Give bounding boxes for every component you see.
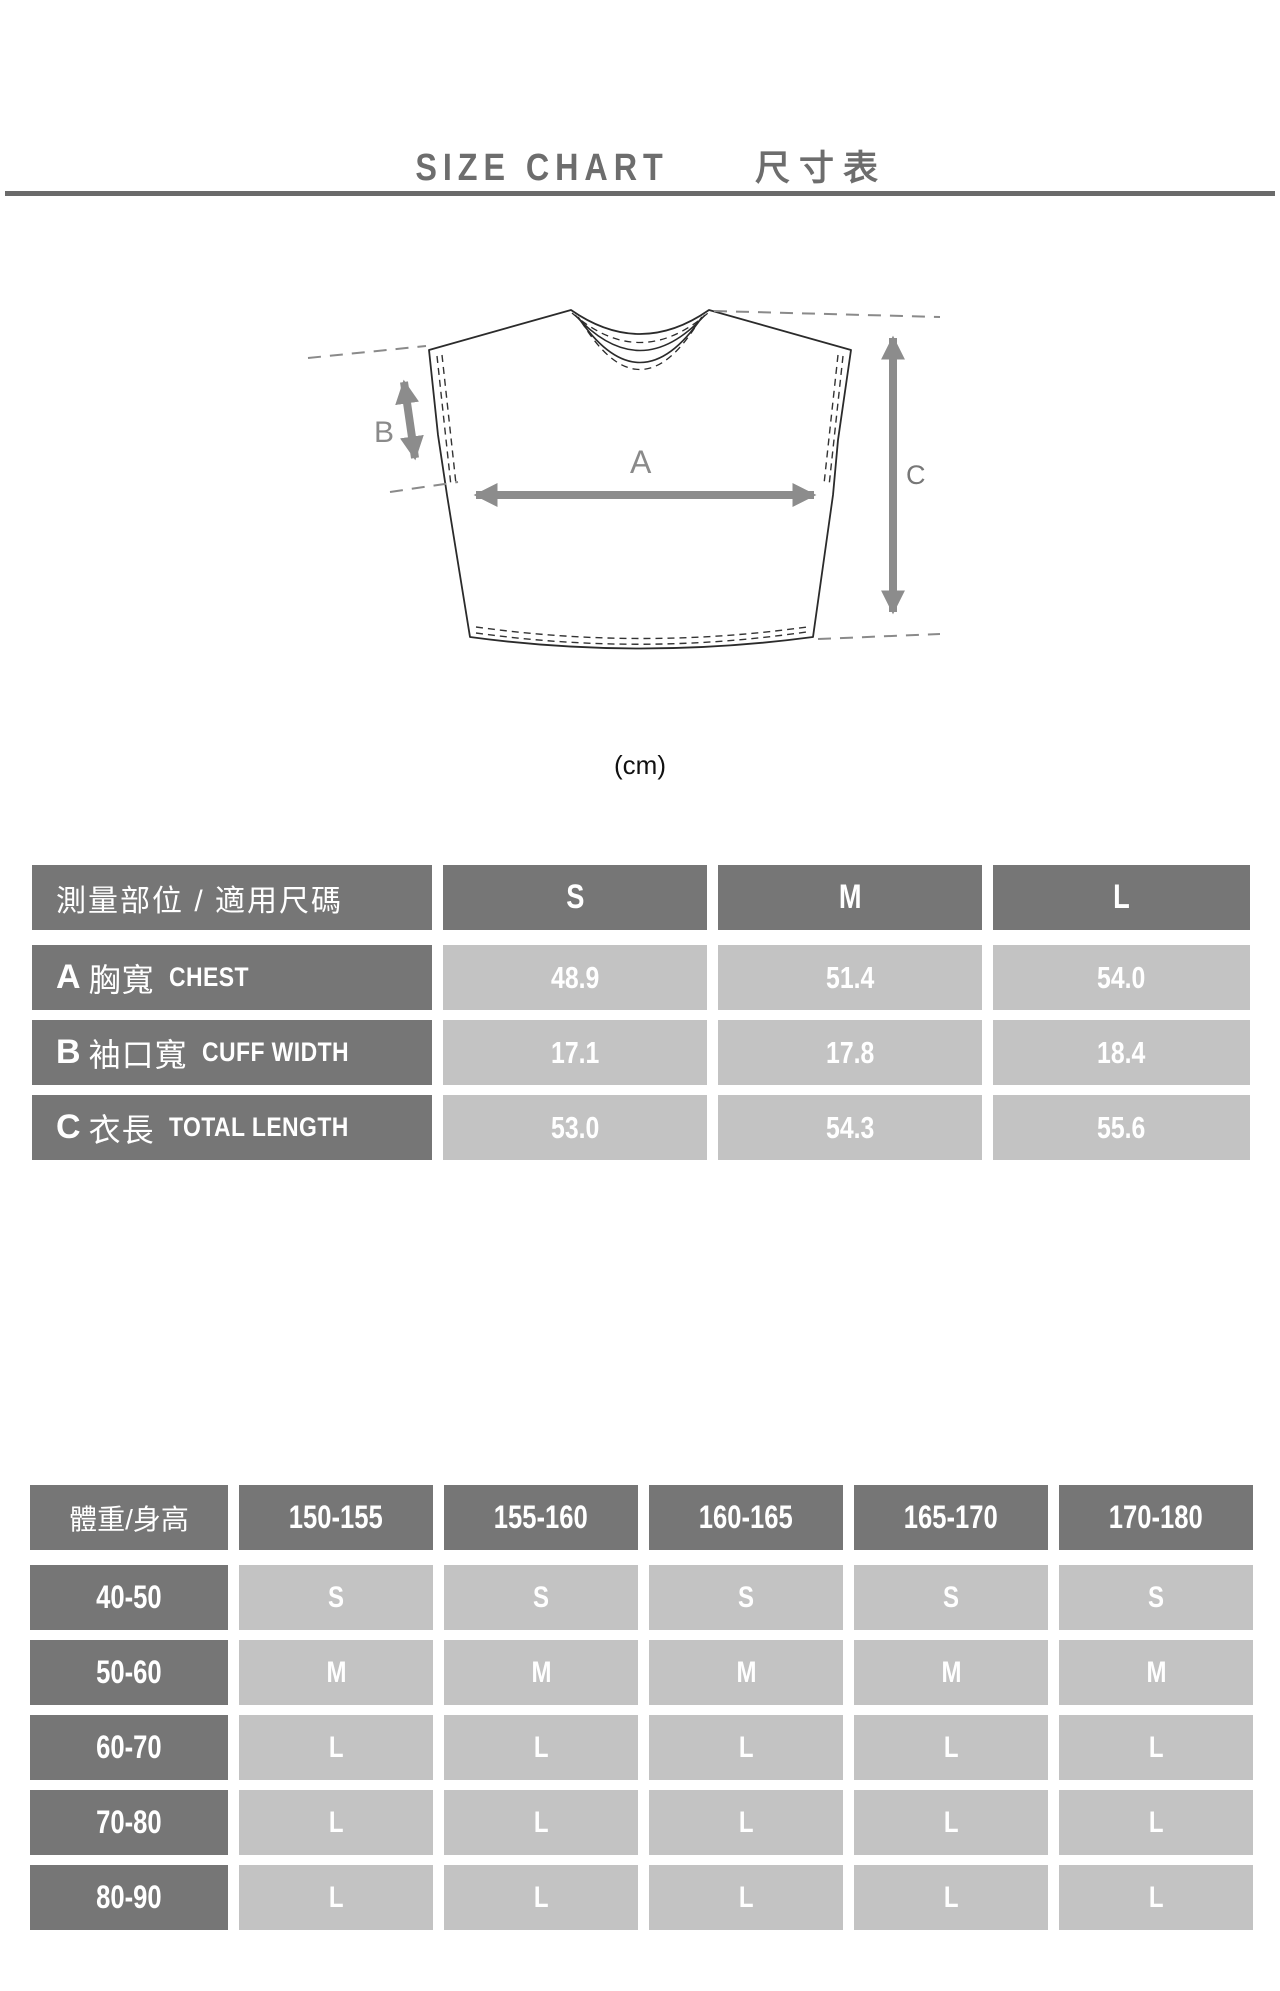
weight-label: 80-90: [30, 1865, 228, 1930]
label-b: B: [374, 416, 394, 449]
length-value-m: 54.3: [718, 1095, 982, 1160]
table-row-cuff: B 袖口寬 CUFF WIDTH 17.1 17.8 18.4: [32, 1020, 1250, 1085]
length-value-s: 53.0: [443, 1095, 707, 1160]
fit-cell: M: [1059, 1640, 1253, 1705]
fit-corner-label: 體重/身高: [30, 1485, 228, 1550]
page-title: SIZE CHART 尺寸表: [0, 140, 1280, 191]
fit-row-70-80: 70-80 L L L L L: [30, 1790, 1248, 1855]
table-row-chest: A 胸寬 CHEST 48.9 51.4 54.0: [32, 945, 1250, 1010]
length-value-l: 55.6: [993, 1095, 1250, 1160]
chest-value-l: 54.0: [993, 945, 1250, 1010]
fit-row-60-70: 60-70 L L L L L: [30, 1715, 1248, 1780]
height-range-3: 160-165: [649, 1485, 843, 1550]
fit-cell: L: [854, 1790, 1048, 1855]
fit-row-80-90: 80-90 L L L L L: [30, 1865, 1248, 1930]
title-english: SIZE CHART: [415, 147, 668, 190]
size-header-s: S: [443, 865, 707, 930]
weight-label: 50-60: [30, 1640, 228, 1705]
height-range-4: 165-170: [854, 1485, 1048, 1550]
size-header-m: M: [718, 865, 982, 930]
fit-cell: M: [854, 1640, 1048, 1705]
measurement-table-header: 測量部位 / 適用尺碼 S M L: [32, 865, 1250, 930]
cuff-value-l: 18.4: [993, 1020, 1250, 1085]
fit-table: 體重/身高 150-155 155-160 160-165 165-170 17…: [30, 1485, 1248, 1940]
chest-value-s: 48.9: [443, 945, 707, 1010]
weight-label: 70-80: [30, 1790, 228, 1855]
fit-cell: L: [854, 1865, 1048, 1930]
label-a: A: [630, 444, 652, 480]
row-label-length: C 衣長 TOTAL LENGTH: [32, 1095, 432, 1160]
fit-cell: S: [1059, 1565, 1253, 1630]
weight-label: 40-50: [30, 1565, 228, 1630]
unit-label: (cm): [0, 750, 1280, 781]
measure-header-label: 測量部位 / 適用尺碼: [32, 865, 432, 930]
arrow-b: [404, 382, 415, 458]
row-label-chest: A 胸寬 CHEST: [32, 945, 432, 1010]
fit-cell: M: [444, 1640, 638, 1705]
cuff-value-m: 17.8: [718, 1020, 982, 1085]
fit-cell: L: [649, 1865, 843, 1930]
table-row-length: C 衣長 TOTAL LENGTH 53.0 54.3 55.6: [32, 1095, 1250, 1160]
fit-row-50-60: 50-60 M M M M M: [30, 1640, 1248, 1705]
fit-table-header: 體重/身高 150-155 155-160 160-165 165-170 17…: [30, 1485, 1248, 1550]
fit-cell: S: [649, 1565, 843, 1630]
fit-cell: L: [239, 1715, 433, 1780]
height-range-5: 170-180: [1059, 1485, 1253, 1550]
fit-cell: L: [444, 1715, 638, 1780]
fit-cell: S: [239, 1565, 433, 1630]
fit-cell: L: [1059, 1790, 1253, 1855]
fit-cell: S: [444, 1565, 638, 1630]
row-label-cuff: B 袖口寬 CUFF WIDTH: [32, 1020, 432, 1085]
fit-cell: L: [239, 1865, 433, 1930]
weight-label: 60-70: [30, 1715, 228, 1780]
fit-cell: S: [854, 1565, 1048, 1630]
fit-cell: L: [239, 1790, 433, 1855]
fit-cell: L: [649, 1715, 843, 1780]
title-divider: [5, 191, 1275, 196]
height-range-2: 155-160: [444, 1485, 638, 1550]
label-c: C: [906, 460, 926, 490]
cuff-value-s: 17.1: [443, 1020, 707, 1085]
fit-cell: L: [854, 1715, 1048, 1780]
fit-cell: M: [239, 1640, 433, 1705]
chest-value-m: 51.4: [718, 945, 982, 1010]
fit-row-40-50: 40-50 S S S S S: [30, 1565, 1248, 1630]
measurement-table: 測量部位 / 適用尺碼 S M L A 胸寬 CHEST 48.9 51.4 5…: [32, 865, 1250, 1170]
title-chinese: 尺寸表: [755, 140, 887, 191]
tshirt-diagram: B A C: [290, 230, 950, 660]
height-range-1: 150-155: [239, 1485, 433, 1550]
fit-cell: L: [649, 1790, 843, 1855]
fit-cell: L: [444, 1790, 638, 1855]
fit-cell: L: [1059, 1715, 1253, 1780]
fit-cell: M: [649, 1640, 843, 1705]
fit-cell: L: [444, 1865, 638, 1930]
fit-cell: L: [1059, 1865, 1253, 1930]
size-header-l: L: [993, 865, 1250, 930]
